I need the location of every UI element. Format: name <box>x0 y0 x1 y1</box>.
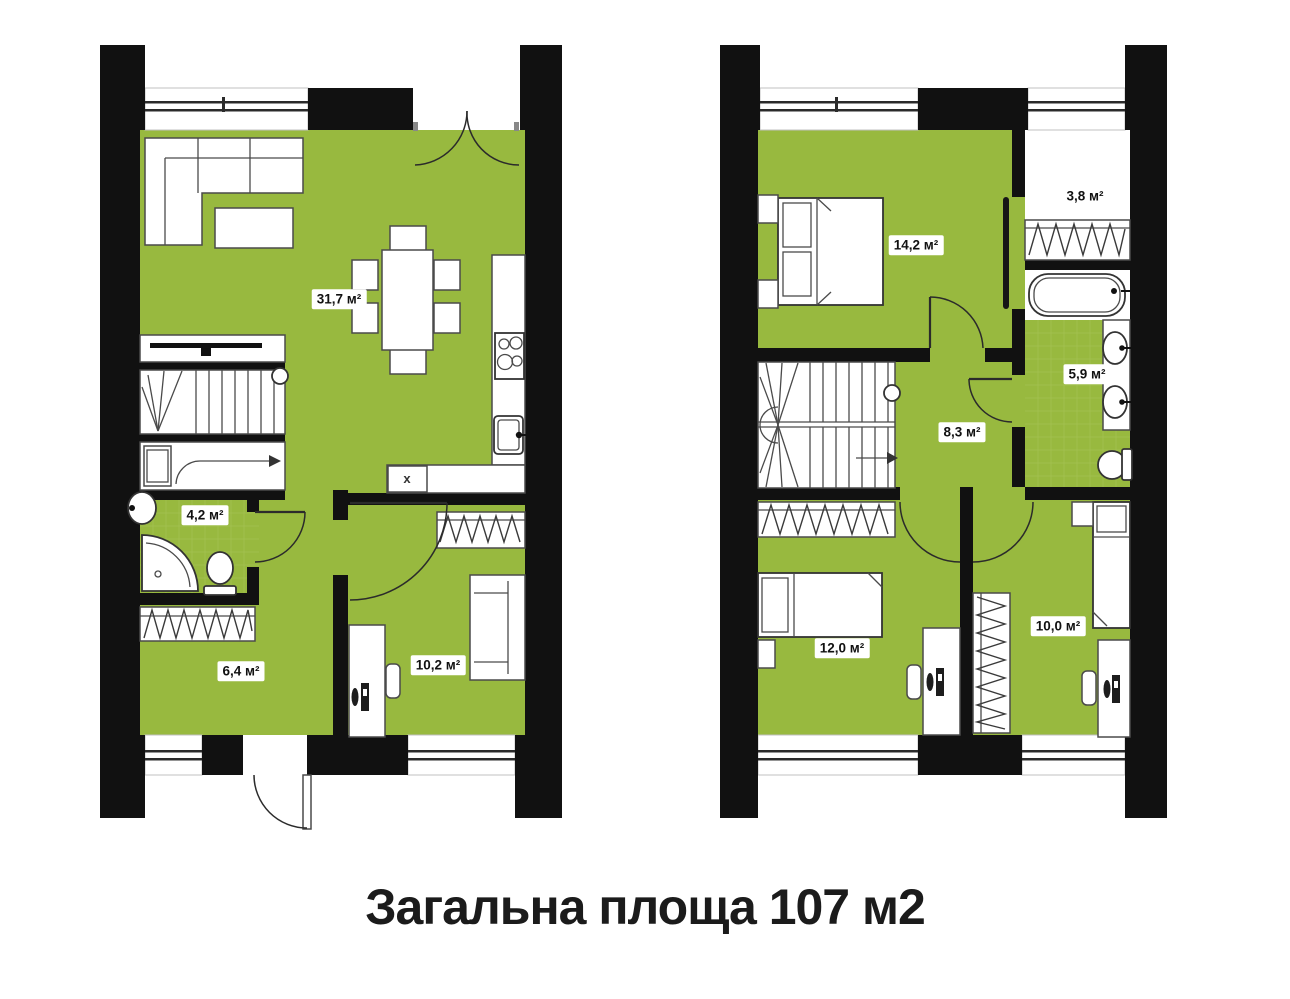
closet-door-leaf <box>1003 197 1009 309</box>
appliance-box: x <box>388 466 427 492</box>
tv-unit <box>140 335 285 362</box>
toilet-icon <box>204 552 236 595</box>
room-area-label-hall: 8,3 м² <box>939 422 986 442</box>
room-area-label-closet: 3,8 м² <box>1062 186 1109 206</box>
room-area-label-bathroom1: 4,2 м² <box>182 505 229 525</box>
bedroom-left-wardrobe-icon <box>758 502 895 537</box>
coffee-table-icon <box>215 208 293 248</box>
floor1-plan: x <box>100 45 562 818</box>
stove-icon <box>495 333 524 379</box>
room-area-label-bedroom-left: 12,0 м² <box>815 638 870 658</box>
floor1-drawing: x <box>100 45 562 818</box>
bathtub-icon <box>1025 270 1130 320</box>
floorplan-image: x <box>0 0 1290 999</box>
closet-wardrobe-icon <box>1025 220 1130 260</box>
total-area-title: Загальна площа 107 м2 <box>0 878 1290 936</box>
bedroom-right-wardrobe-icon <box>973 593 1010 733</box>
room-area-label-master-bedroom: 14,2 м² <box>889 235 944 255</box>
floor1-stairs <box>140 368 288 434</box>
understairs-storage <box>140 442 285 490</box>
toilet2-icon <box>1098 449 1132 480</box>
room-area-label-bedroom-right: 10,0 м² <box>1031 616 1086 636</box>
sink-icon <box>128 492 156 524</box>
room-sofa-icon <box>470 575 525 680</box>
room-area-label-living: 31,7 м² <box>312 289 367 309</box>
entrance-door <box>254 775 311 829</box>
kitchen-sink-icon <box>494 416 529 454</box>
closet-floor <box>1025 130 1130 220</box>
floor2-plan: 14,2 м² 3,8 м² 5,9 м² 8,3 м² 12,0 м² 10,… <box>720 45 1167 818</box>
room-area-label-hallway: 6,4 м² <box>218 661 265 681</box>
room-area-label-bathroom2: 5,9 м² <box>1064 364 1111 384</box>
room-wardrobe-icon <box>437 512 525 548</box>
room-area-label-bedroom1: 10,2 м² <box>411 655 466 675</box>
appliance-marker: x <box>403 471 411 486</box>
hallway-wardrobe-icon <box>140 607 255 641</box>
floor2-stairs <box>758 362 900 488</box>
